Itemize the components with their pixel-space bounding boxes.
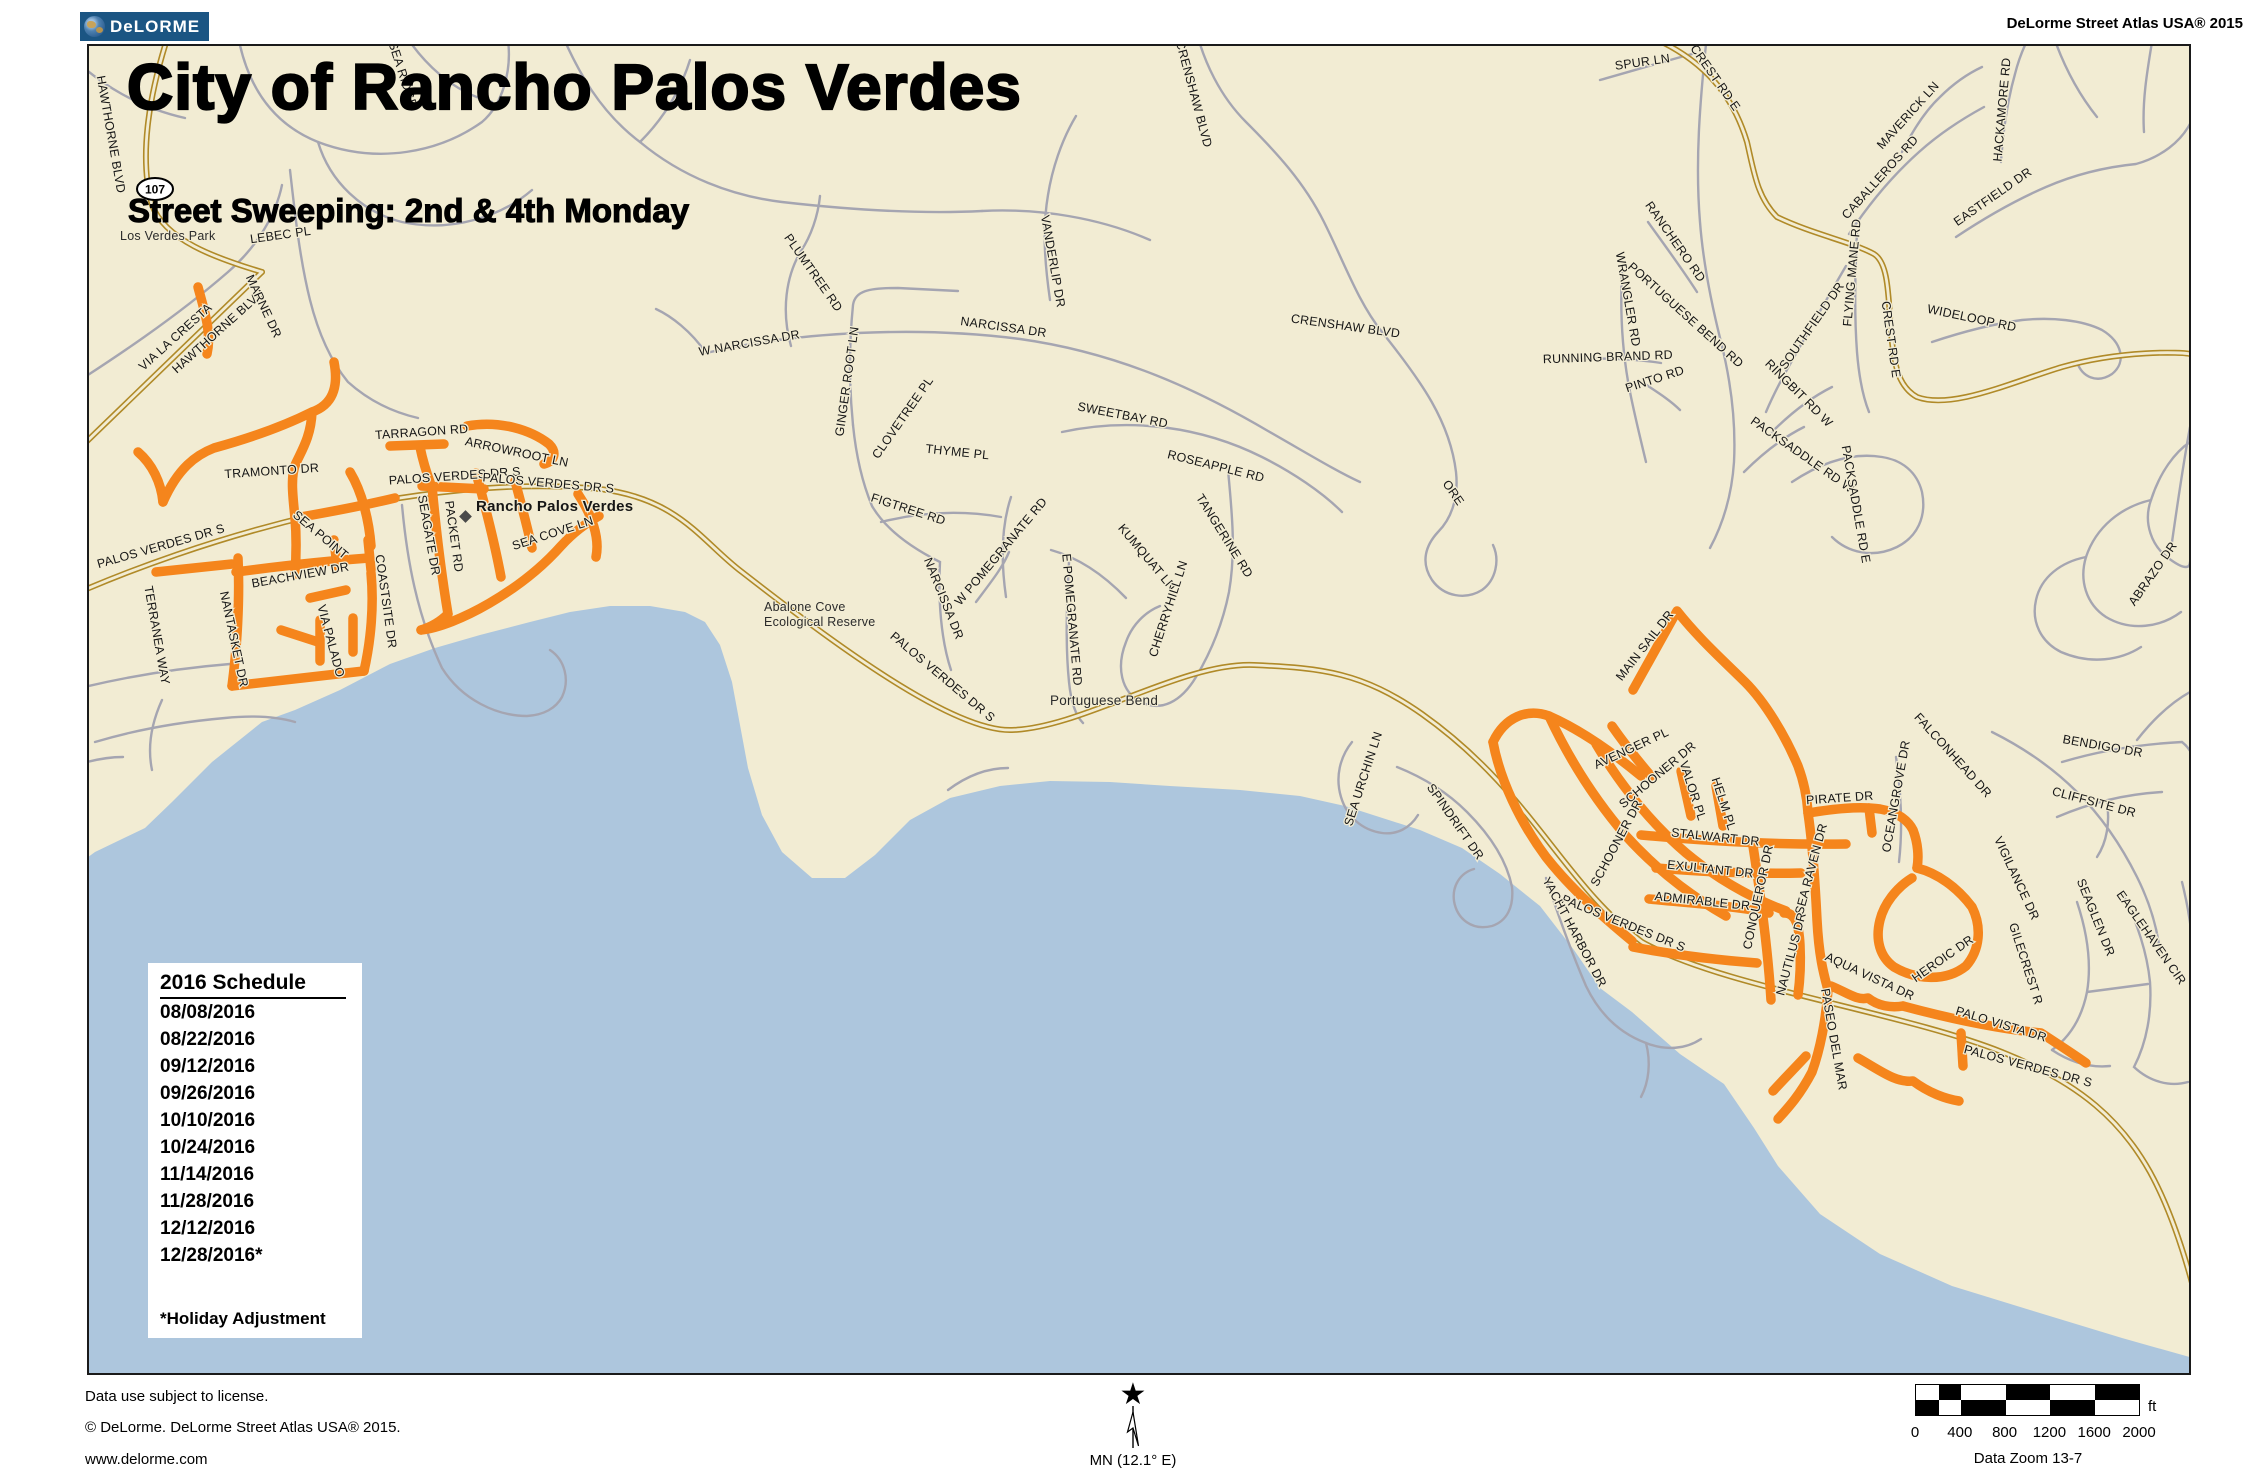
globe-icon — [84, 16, 105, 37]
label-los-verdes-park: Los Verdes Park — [120, 229, 216, 243]
logo-text: DeLORME — [110, 17, 200, 37]
website-text: www.delorme.com — [85, 1451, 208, 1468]
label-abalone-cove2: Ecological Reserve — [764, 615, 876, 629]
schedule-date: 09/26/2016 — [160, 1080, 362, 1107]
schedule-date: 10/24/2016 — [160, 1134, 362, 1161]
schedule-date: 09/12/2016 — [160, 1053, 362, 1080]
schedule-note: *Holiday Adjustment — [160, 1309, 362, 1329]
label-city: Rancho Palos Verdes — [476, 498, 633, 515]
scale-tick: 2000 — [2122, 1424, 2155, 1441]
scale-tick: 1200 — [2033, 1424, 2066, 1441]
scale-tick: 400 — [1947, 1424, 1972, 1441]
schedule-date: 08/08/2016 — [160, 999, 362, 1026]
data-zoom-label: Data Zoom 13-7 — [1928, 1450, 2128, 1467]
schedule-box: 2016 Schedule 08/08/201608/22/201609/12/… — [148, 963, 362, 1338]
compass-north-arrow: ★ — [1120, 1378, 1147, 1448]
compass-label: MN (12.1° E) — [1063, 1452, 1203, 1469]
schedule-date: 08/22/2016 — [160, 1026, 362, 1053]
schedule-date: 11/28/2016 — [160, 1188, 362, 1215]
scale-tick: 1600 — [2078, 1424, 2111, 1441]
page-title: City of Rancho Palos Verdes — [127, 50, 1022, 124]
schedule-date: 11/14/2016 — [160, 1161, 362, 1188]
scale-unit: ft — [2148, 1398, 2156, 1415]
scale-bar — [1915, 1384, 2140, 1416]
label-abalone-cove: Abalone Cove — [764, 600, 846, 614]
schedule-date: 12/12/2016 — [160, 1215, 362, 1242]
schedule-date: 12/28/2016* — [160, 1242, 362, 1269]
scale-ticks: 0400800120016002000 — [1915, 1424, 2145, 1442]
atlas-title: DeLorme Street Atlas USA® 2015 — [2007, 15, 2243, 32]
schedule-dates: 08/08/201608/22/201609/12/201609/26/2016… — [160, 999, 362, 1269]
label-portuguese-bend: Portuguese Bend — [1050, 693, 1158, 708]
page-subtitle: Street Sweeping: 2nd & 4th Monday — [128, 192, 689, 230]
delorme-logo: DeLORME — [80, 12, 209, 41]
schedule-date: 10/10/2016 — [160, 1107, 362, 1134]
schedule-title: 2016 Schedule — [160, 971, 346, 999]
license-text: Data use subject to license. — [85, 1388, 268, 1405]
copyright-text: © DeLorme. DeLorme Street Atlas USA® 201… — [85, 1419, 401, 1436]
scale-tick: 0 — [1911, 1424, 1919, 1441]
scale-tick: 800 — [1992, 1424, 2017, 1441]
